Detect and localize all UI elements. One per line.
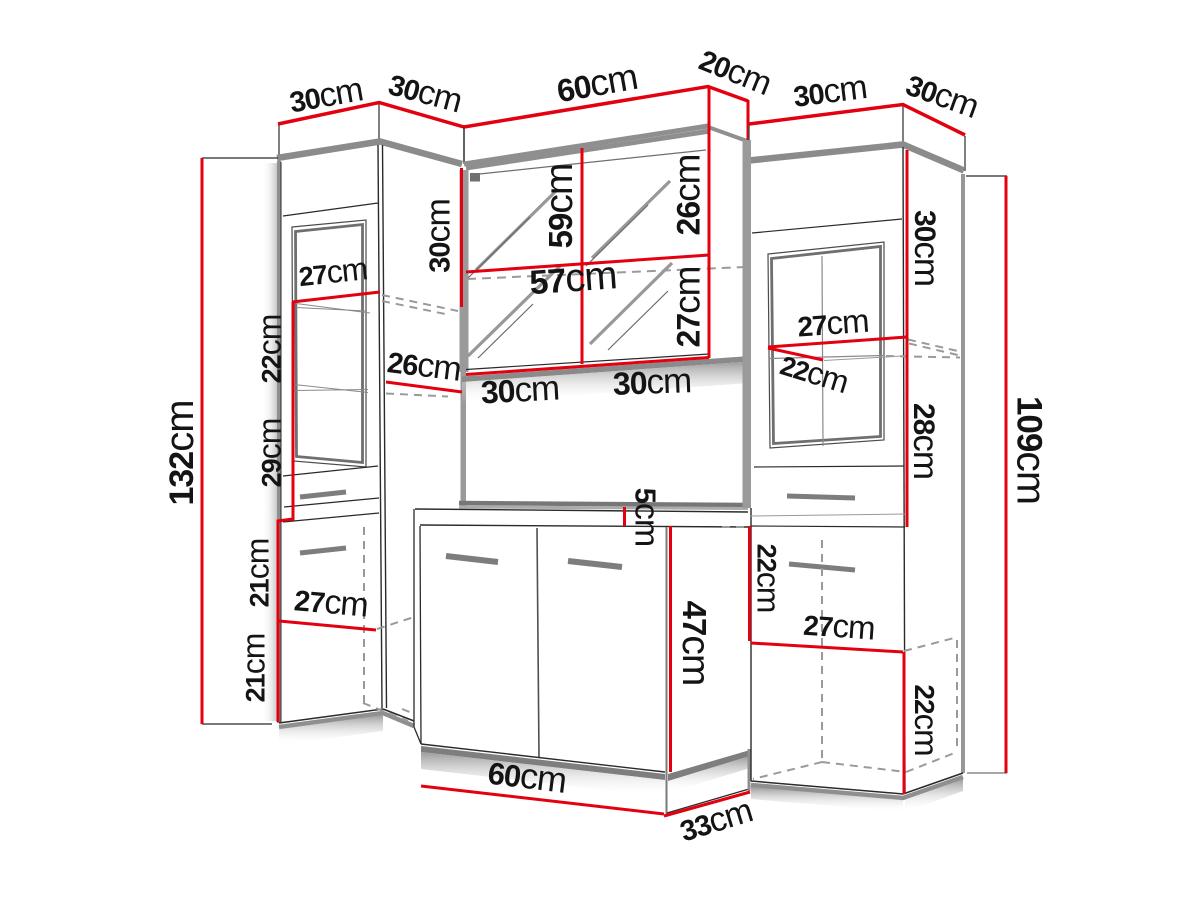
svg-text:21cm: 21cm bbox=[240, 539, 276, 608]
svg-text:132cm: 132cm bbox=[158, 400, 202, 505]
svg-text:30cm: 30cm bbox=[419, 199, 457, 273]
svg-text:29cm: 29cm bbox=[252, 419, 288, 488]
svg-text:28cm: 28cm bbox=[906, 403, 945, 479]
svg-text:27cm: 27cm bbox=[802, 605, 876, 647]
svg-text:27cm: 27cm bbox=[667, 267, 708, 348]
svg-text:27cm: 27cm bbox=[293, 580, 370, 624]
svg-text:22cm: 22cm bbox=[908, 684, 945, 755]
svg-text:22cm: 22cm bbox=[750, 544, 786, 613]
svg-text:21cm: 21cm bbox=[236, 634, 272, 703]
svg-text:30cm: 30cm bbox=[907, 210, 946, 286]
svg-text:30cm: 30cm bbox=[480, 368, 560, 411]
svg-text:26cm: 26cm bbox=[667, 155, 708, 236]
svg-text:47cm: 47cm bbox=[674, 601, 717, 686]
svg-text:5cm: 5cm bbox=[628, 488, 666, 546]
svg-text:22cm: 22cm bbox=[252, 315, 288, 384]
svg-text:59cm: 59cm bbox=[538, 164, 581, 249]
svg-text:30cm: 30cm bbox=[612, 361, 692, 403]
svg-text:109cm: 109cm bbox=[1008, 396, 1054, 504]
